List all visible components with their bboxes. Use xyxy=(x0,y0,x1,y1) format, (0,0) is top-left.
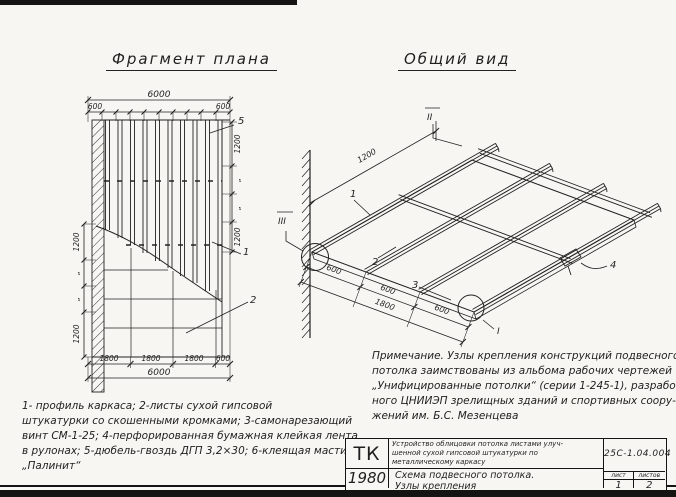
iso-callout-2: 2 xyxy=(372,257,378,268)
legend-line: „Палинит“ xyxy=(22,459,360,474)
iso-callout-1: 1 xyxy=(350,189,356,200)
plan-dim-right-2: „ xyxy=(233,178,242,182)
title-block-sheets-cell: листов 2 xyxy=(634,472,665,488)
legend-line: винт СМ-1-25; 4-перфорированная бумажная… xyxy=(22,429,360,444)
iso-dim-spacing-3: 600 xyxy=(433,303,450,317)
drawing-sheet: 6000 600 600 1200 „ „ 1200 1200 „ „ 1200… xyxy=(0,0,676,497)
plan-extension-lines xyxy=(84,96,237,382)
plan-dim-left-4: 1200 xyxy=(72,324,81,343)
title-block-doc-number: 25С-1.04.004 xyxy=(604,439,665,472)
plan-dim-bottom-4: 600 xyxy=(216,354,231,363)
title-block-sheet-cell: лист 1 xyxy=(604,472,634,488)
iso-callout-leaders xyxy=(354,200,607,300)
iso-node-marker-top: II xyxy=(427,113,433,123)
plan-dim-bottom-2: 1800 xyxy=(141,354,160,363)
iso-dim-length-line xyxy=(310,121,436,203)
iso-board-joints xyxy=(366,180,580,292)
sheets-total: 2 xyxy=(634,480,665,490)
plan-view xyxy=(82,96,249,392)
plan-dim-left-1: 1200 xyxy=(72,232,81,251)
iso-callout-4: 4 xyxy=(610,260,616,271)
legend-line: в рулонах; 5-дюбель-гвоздь ДГП 3,2×30; 6… xyxy=(22,444,360,459)
plan-dim-top-right: 600 xyxy=(216,102,231,111)
iso-dim-spacing-1: 600 xyxy=(325,263,342,277)
iso-title: Общий вид xyxy=(398,50,516,71)
sheet-title-line: Узлы крепления xyxy=(395,481,597,492)
sheet-number: 1 xyxy=(604,480,633,490)
plan-dim-bottom-1: 1800 xyxy=(99,354,118,363)
plan-dim-top-left: 600 xyxy=(88,102,103,111)
project-line: Устройство облицовки потолка листами улу… xyxy=(392,440,600,449)
plan-ribs xyxy=(106,120,223,299)
note-line: потолка заимствованы из альбома рабочих … xyxy=(372,364,676,379)
iso-callout-3: 3 xyxy=(412,280,418,291)
plan-dim-bottom-total: 6000 xyxy=(148,368,171,378)
title-block-sheet-title: Схема подвесного потолка. Узлы крепления xyxy=(389,469,604,488)
legend-line: штукатурки со скошенными кромками; 3-сам… xyxy=(22,414,360,429)
plan-dim-right-3: „ xyxy=(233,206,242,210)
iso-ceiling-plane xyxy=(312,160,634,312)
plan-dim-top-total: 6000 xyxy=(148,90,171,100)
note-line: „Унифицированные потолки“ (серии 1-245-1… xyxy=(372,379,676,394)
note-line: Примечание. Узлы крепления конструкций п… xyxy=(372,349,676,364)
iso-view xyxy=(277,108,661,347)
plan-sheet-grid xyxy=(104,248,222,357)
note-line: ного ЦНИИЭП зрелищных зданий и спортивны… xyxy=(372,394,676,409)
note-line: жений им. Б.С. Мезенцева xyxy=(372,409,676,424)
iso-profiles xyxy=(311,143,661,314)
iso-wall-hatch xyxy=(302,150,310,338)
sheet-title-line: Схема подвесного потолка. xyxy=(395,470,597,481)
plan-dim-right-4: 1200 xyxy=(233,227,242,246)
iso-dim-spacing-2: 600 xyxy=(379,283,396,297)
title-block-project: Устройство облицовки потолка листами улу… xyxy=(389,439,604,469)
plan-callout-5: 5 xyxy=(238,116,244,127)
sheets-header: листов xyxy=(634,472,665,480)
project-line: шенной сухой гипсовой штукатурки по xyxy=(392,449,600,458)
legend-line: 1- профиль каркаса; 2-листы сухой гипсов… xyxy=(22,399,360,414)
project-line: металлическому каркасу xyxy=(392,458,600,467)
title-block-code: ТК xyxy=(346,439,389,469)
iso-node-marker-bottom-right: I xyxy=(497,327,500,337)
iso-dim-length: 1200 xyxy=(356,147,378,165)
plan-dim-left-3: „ xyxy=(72,297,81,301)
iso-runners xyxy=(399,149,652,264)
iso-node-marker-left: III xyxy=(278,217,286,227)
plan-break-line xyxy=(96,226,222,302)
plan-dim-left-2: „ xyxy=(72,271,81,275)
plan-wall-hatch xyxy=(92,120,104,392)
title-block-year: 1980 xyxy=(346,469,389,488)
plan-callout-2: 2 xyxy=(250,295,256,306)
sheet-header: лист xyxy=(604,472,633,480)
title-block: ТК 1980 Устройство облицовки потолка лис… xyxy=(345,438,667,491)
legend-paragraph: 1- профиль каркаса; 2-листы сухой гипсов… xyxy=(22,399,360,474)
plan-dim-bottom-3: 1800 xyxy=(184,354,203,363)
plan-callout-1: 1 xyxy=(243,247,249,258)
note-paragraph: Примечание. Узлы крепления конструкций п… xyxy=(372,349,676,424)
plan-title: Фрагмент плана xyxy=(106,50,277,71)
plan-dim-right-1: 1200 xyxy=(233,134,242,153)
